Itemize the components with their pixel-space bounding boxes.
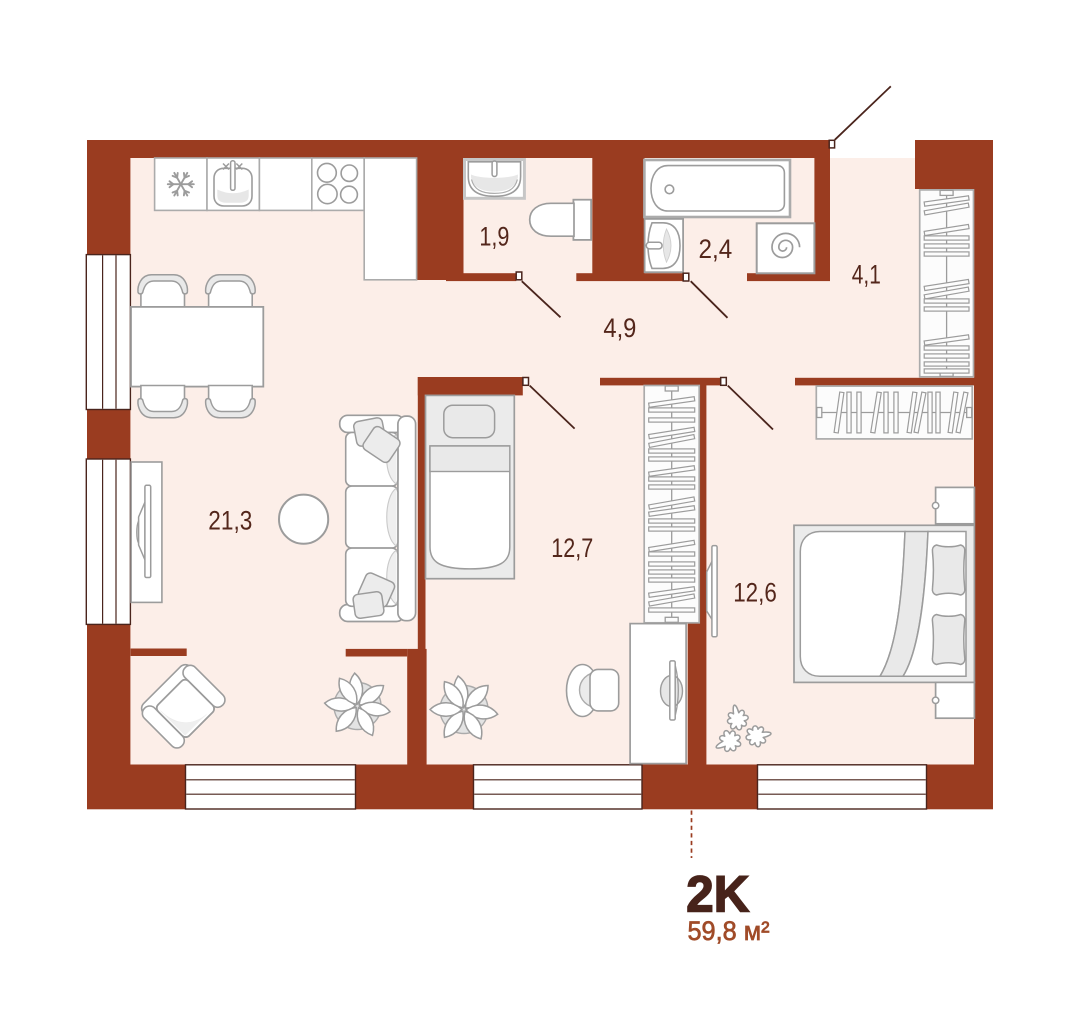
svg-text:12,6: 12,6: [733, 577, 777, 607]
svg-text:1,9: 1,9: [479, 221, 509, 251]
svg-text:4,1: 4,1: [852, 260, 881, 290]
svg-text:4,9: 4,9: [603, 313, 636, 343]
svg-text:2K: 2K: [686, 865, 749, 922]
svg-text:12,7: 12,7: [551, 533, 593, 563]
svg-text:59,8 м²: 59,8 м²: [688, 916, 770, 946]
svg-text:2,4: 2,4: [699, 234, 733, 264]
svg-text:21,3: 21,3: [208, 506, 252, 536]
